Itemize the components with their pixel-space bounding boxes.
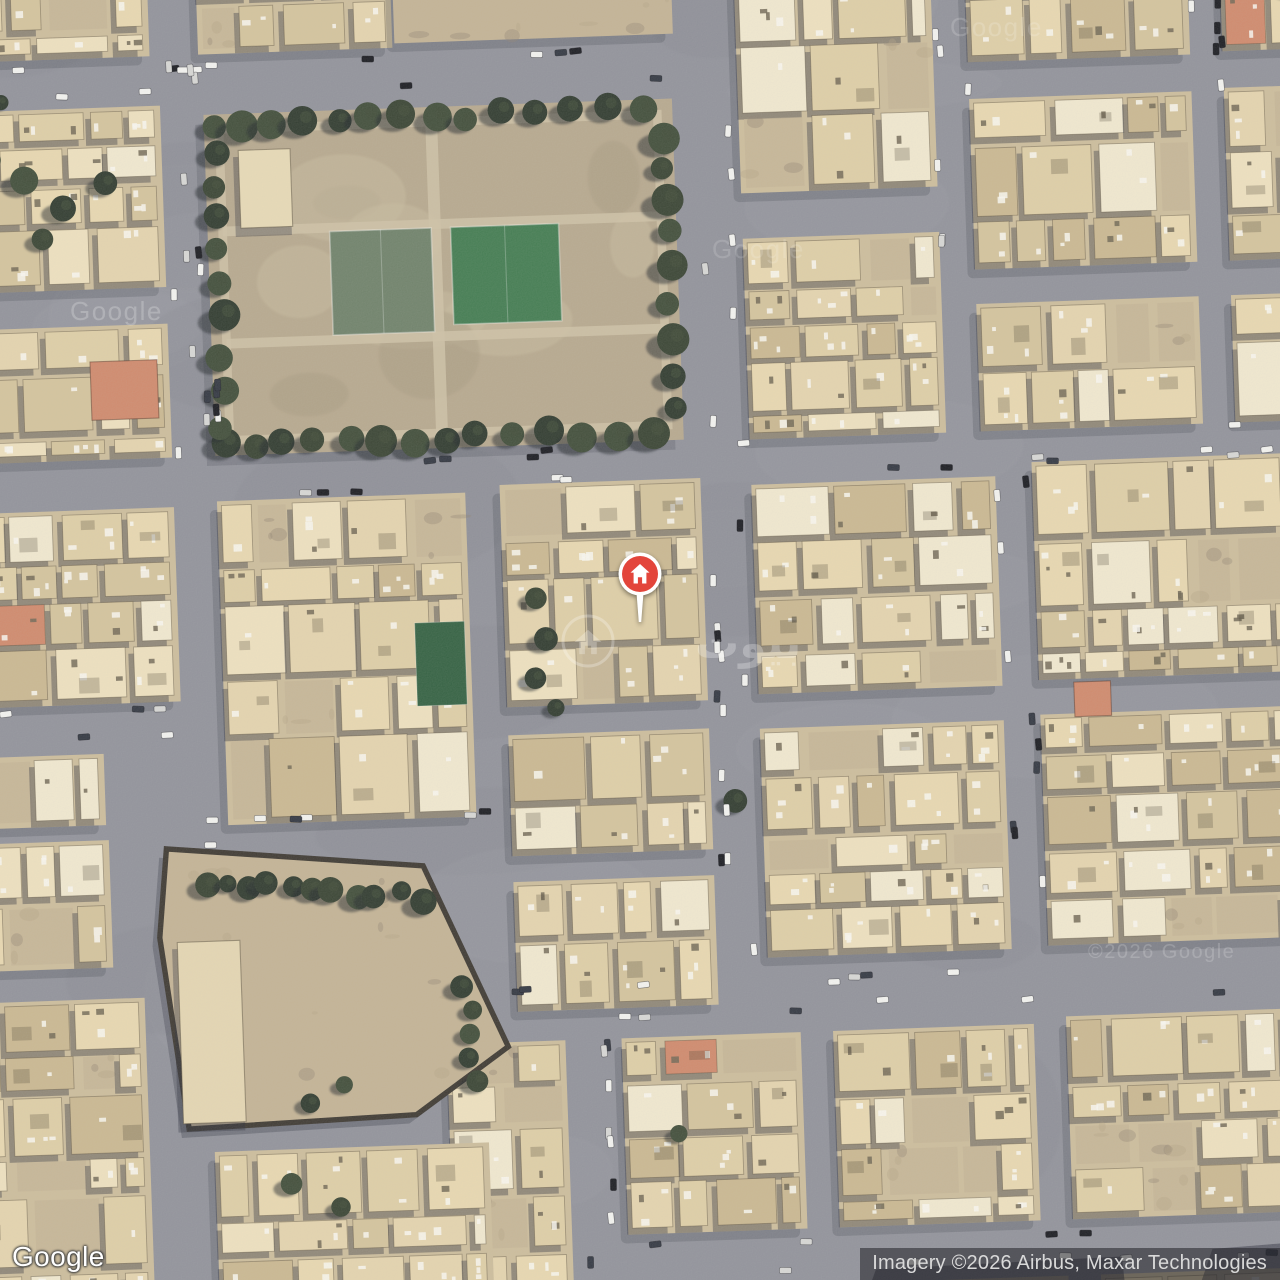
ghost-watermark: ©2026 Google [1088,941,1235,963]
ghost-watermark: Google [712,234,805,264]
ghost-watermark: Google [70,296,163,326]
home-pin-icon [618,552,662,626]
ghost-watermark: Google [950,12,1043,42]
satellite-imagery: GoogleGoogleGoogle©2026 Googleبيوت [0,0,1280,1280]
imagery-attribution: Imagery ©2026 Airbus, Maxar Technologies [860,1248,1280,1280]
map-viewport[interactable]: GoogleGoogleGoogle©2026 Googleبيوت Googl… [0,0,1280,1280]
map-marker[interactable] [618,552,662,626]
google-logo[interactable]: Google [12,1241,105,1273]
listing-watermark-text: بيوت [695,618,801,669]
